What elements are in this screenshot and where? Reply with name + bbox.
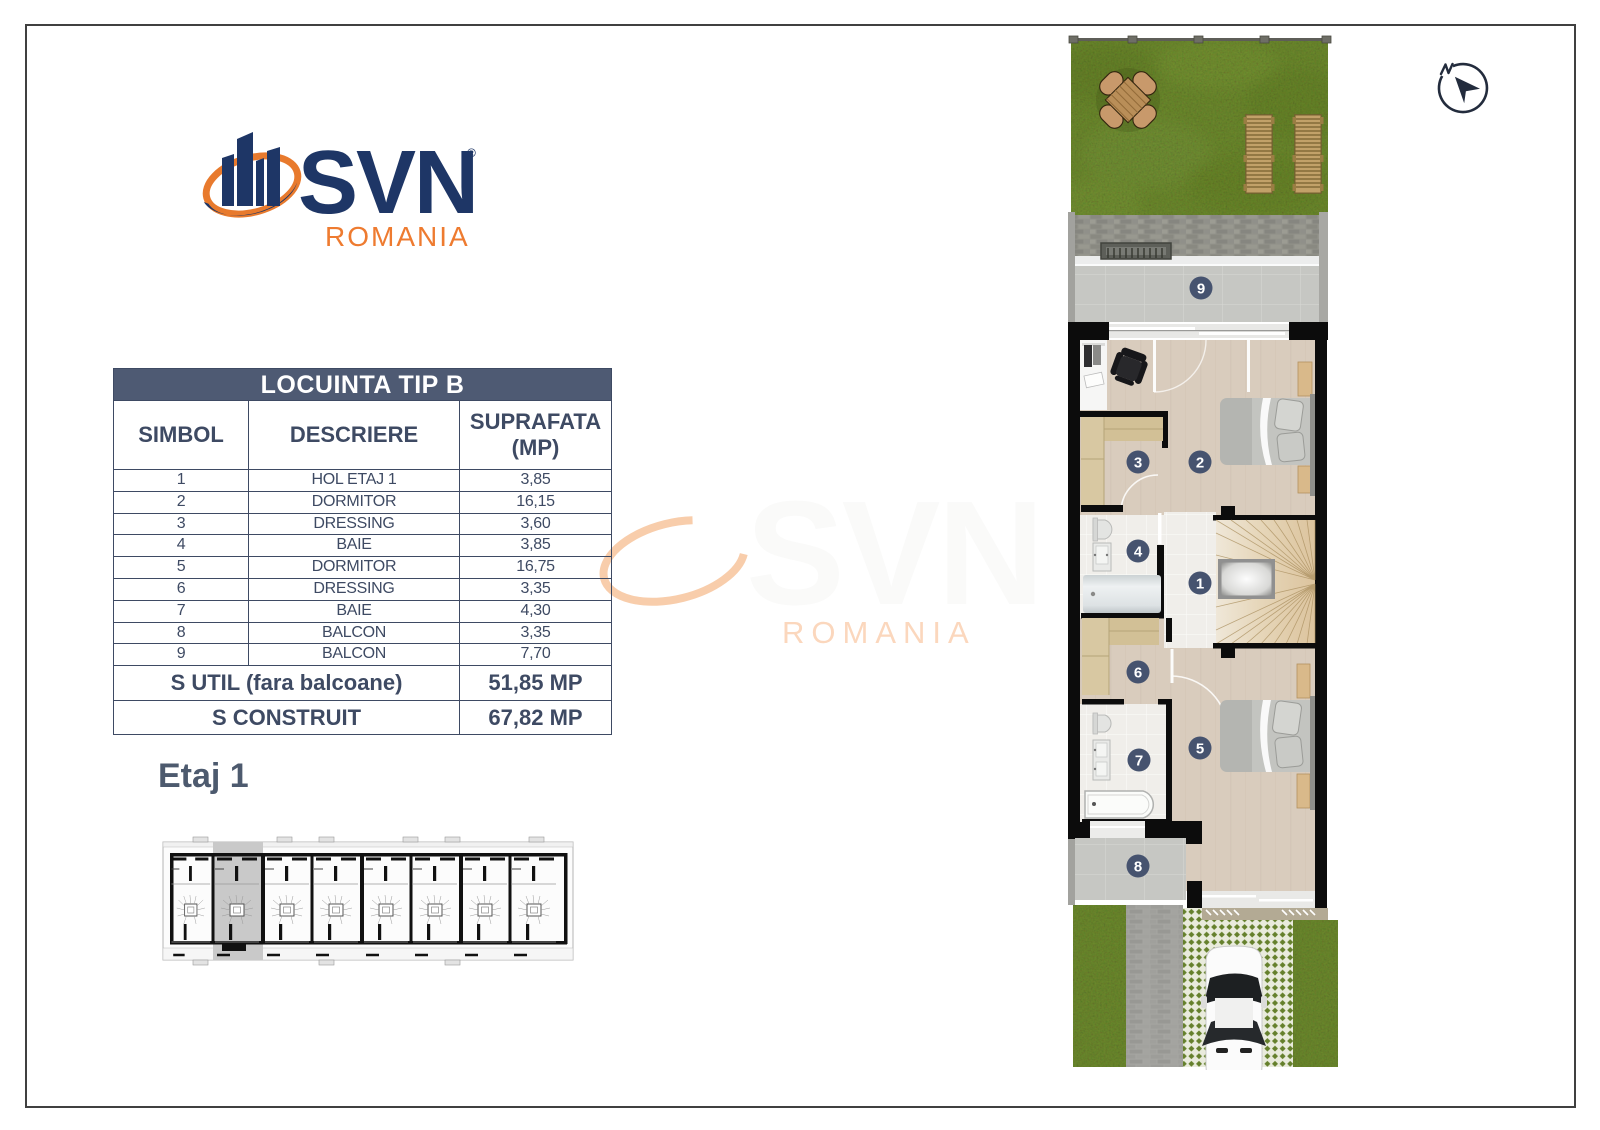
svg-text:9: 9 [1197,281,1205,298]
svg-text:1: 1 [1196,576,1204,593]
svg-text:7: 7 [1135,753,1143,770]
svg-text:®: ® [467,146,476,160]
svg-text:SVN: SVN [746,471,1040,636]
svg-text:5: 5 [1196,741,1204,758]
svg-text:2: 2 [1196,455,1204,472]
svg-text:ROMANIA: ROMANIA [782,615,976,650]
svg-text:SVN: SVN [298,133,477,233]
svg-text:4: 4 [1134,544,1143,561]
svg-text:6: 6 [1134,665,1142,682]
svg-text:ROMANIA: ROMANIA [325,221,470,252]
svg-text:3: 3 [1134,455,1142,472]
svg-text:8: 8 [1134,859,1142,876]
